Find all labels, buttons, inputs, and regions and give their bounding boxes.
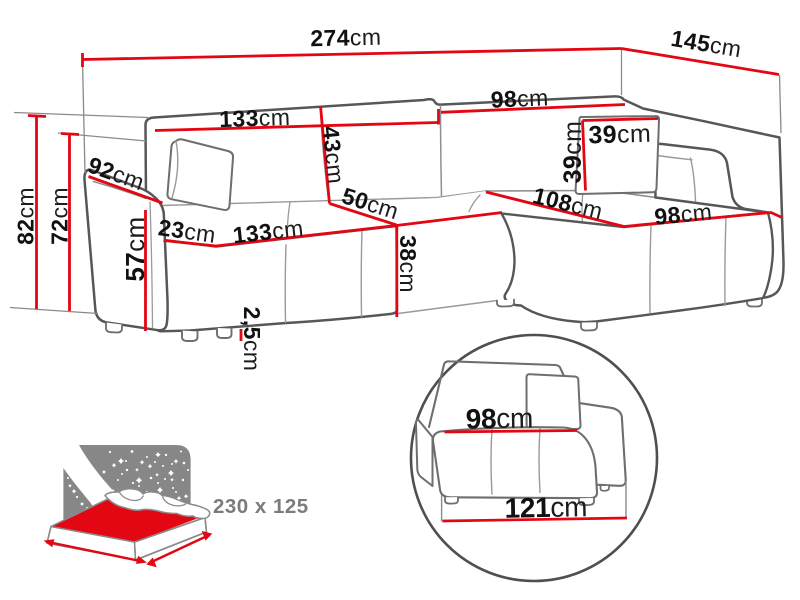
svg-text:98cm: 98cm — [465, 402, 533, 434]
svg-text:39cm: 39cm — [588, 120, 651, 150]
svg-text:39cm: 39cm — [559, 121, 587, 184]
svg-text:230 x 125: 230 x 125 — [213, 495, 309, 518]
svg-text:274cm: 274cm — [310, 24, 382, 51]
svg-text:82cm: 82cm — [13, 187, 39, 245]
svg-text:133cm: 133cm — [219, 104, 291, 132]
svg-text:38cm: 38cm — [395, 235, 421, 293]
svg-text:2,5cm: 2,5cm — [239, 307, 265, 372]
svg-text:72cm: 72cm — [47, 187, 73, 245]
svg-text:57cm: 57cm — [120, 216, 150, 281]
svg-text:98cm: 98cm — [490, 84, 549, 112]
svg-text:121cm: 121cm — [504, 491, 587, 523]
